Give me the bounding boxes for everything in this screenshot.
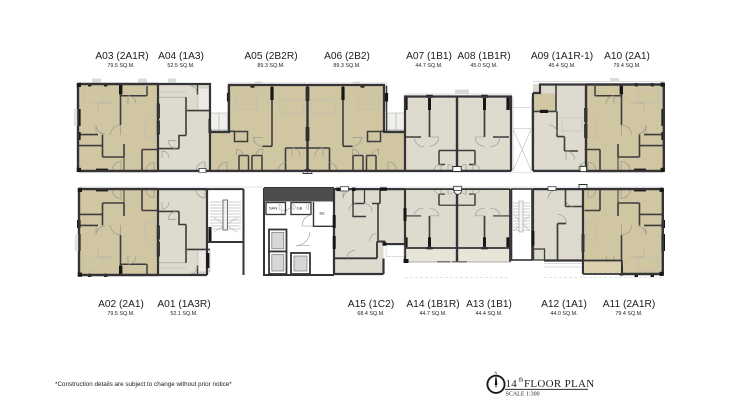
- svg-text:A02 (2A1): A02 (2A1): [98, 299, 144, 310]
- svg-text:14: 14: [506, 378, 518, 390]
- svg-text:GB: GB: [297, 206, 303, 211]
- svg-text:44.7 SQ.M.: 44.7 SQ.M.: [419, 311, 446, 317]
- svg-text:A13 (1B1): A13 (1B1): [466, 299, 512, 310]
- svg-text:A08 (1B1R): A08 (1B1R): [457, 51, 510, 62]
- svg-text:FLOOR PLAN: FLOOR PLAN: [524, 378, 595, 390]
- svg-text:52.1 SQ.M.: 52.1 SQ.M.: [170, 311, 197, 317]
- svg-text:SAN: SAN: [269, 206, 277, 211]
- svg-text:*Construction details are subj: *Construction details are subject to cha…: [55, 381, 232, 388]
- svg-text:A01 (1A3R): A01 (1A3R): [157, 299, 210, 310]
- svg-text:45.0 SQ.M.: 45.0 SQ.M.: [470, 63, 497, 69]
- svg-text:N: N: [494, 372, 497, 376]
- svg-text:A14 (1B1R): A14 (1B1R): [406, 299, 459, 310]
- svg-text:79.4 SQ.M.: 79.4 SQ.M.: [615, 311, 642, 317]
- svg-text:A07 (1B1): A07 (1B1): [406, 51, 452, 62]
- svg-text:52.5 SQ.M.: 52.5 SQ.M.: [167, 63, 194, 69]
- svg-text:68.4 SQ.M.: 68.4 SQ.M.: [357, 311, 384, 317]
- svg-text:89.3 SQ.M.: 89.3 SQ.M.: [257, 63, 284, 69]
- svg-text:45.4 SQ.M.: 45.4 SQ.M.: [548, 63, 575, 69]
- svg-text:A04 (1A3): A04 (1A3): [158, 51, 204, 62]
- svg-text:44.7 SQ.M.: 44.7 SQ.M.: [415, 63, 442, 69]
- svg-text:SCALE 1:300: SCALE 1:300: [506, 392, 540, 398]
- svg-text:A11 (2A1R): A11 (2A1R): [603, 299, 655, 310]
- svg-text:A10 (2A1): A10 (2A1): [604, 51, 650, 62]
- svg-text:A05 (2B2R): A05 (2B2R): [244, 51, 297, 62]
- svg-text:79.5 SQ.M.: 79.5 SQ.M.: [107, 311, 134, 317]
- svg-text:89.3 SQ.M.: 89.3 SQ.M.: [333, 63, 360, 69]
- svg-text:A12 (1A1): A12 (1A1): [541, 299, 587, 310]
- svg-text:79.4 SQ.M.: 79.4 SQ.M.: [613, 63, 640, 69]
- svg-text:44.0 SQ.M.: 44.0 SQ.M.: [550, 311, 577, 317]
- svg-text:A15 (1C2): A15 (1C2): [348, 299, 394, 310]
- svg-text:A06 (2B2): A06 (2B2): [324, 51, 370, 62]
- svg-text:44.4 SQ.M.: 44.4 SQ.M.: [475, 311, 502, 317]
- svg-text:EE: EE: [320, 211, 326, 216]
- svg-text:A09 (1A1R-1): A09 (1A1R-1): [531, 51, 593, 62]
- svg-text:79.5 SQ.M.: 79.5 SQ.M.: [107, 63, 134, 69]
- svg-text:A03 (2A1R): A03 (2A1R): [95, 51, 148, 62]
